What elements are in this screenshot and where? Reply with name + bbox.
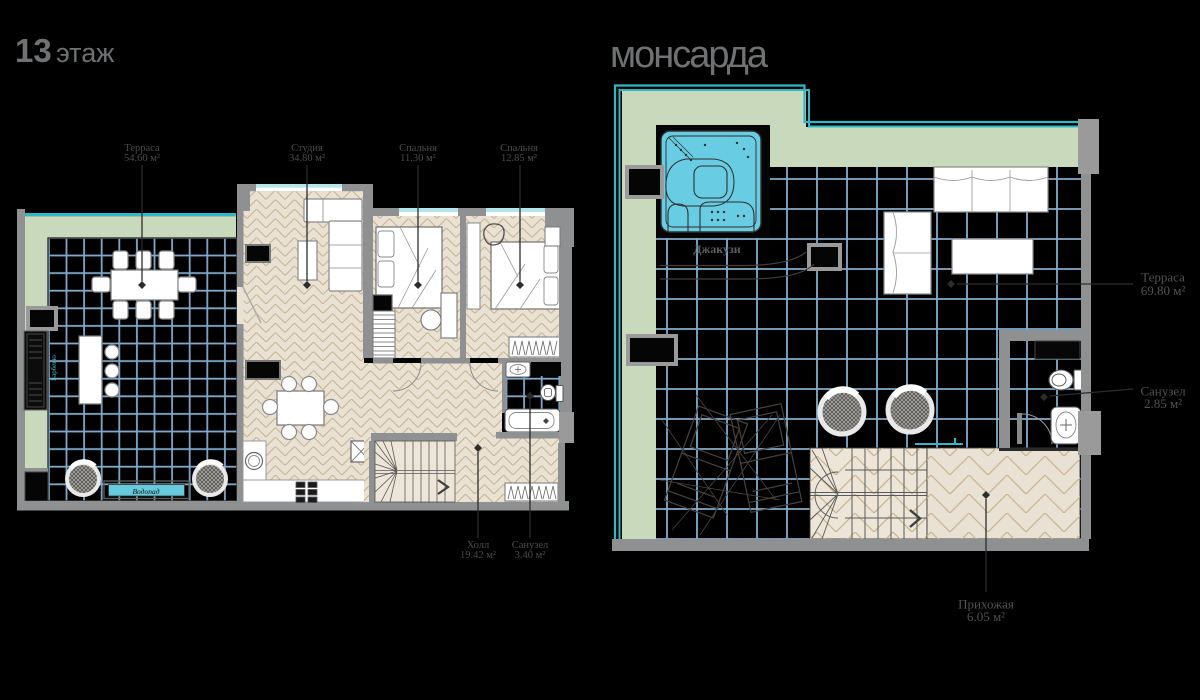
svg-text:19.42 м²: 19.42 м² — [460, 550, 496, 561]
svg-text:Водопад: Водопад — [132, 487, 159, 496]
svg-text:11.30 м²: 11.30 м² — [400, 153, 436, 164]
svg-text:Джакузи: Джакузи — [693, 242, 741, 256]
svg-text:34.80 м²: 34.80 м² — [289, 153, 325, 164]
svg-text:54.60 м²: 54.60 м² — [124, 153, 160, 164]
svg-text:69.80 м²: 69.80 м² — [1141, 283, 1186, 298]
svg-text:3.40 м²: 3.40 м² — [515, 550, 546, 561]
svg-text:12.85 м²: 12.85 м² — [501, 153, 537, 164]
svg-text:13: 13 — [15, 32, 52, 69]
svg-text:2.85 м²: 2.85 м² — [1144, 396, 1182, 411]
svg-text:этаж: этаж — [56, 38, 114, 68]
svg-text:6.05 м²: 6.05 м² — [967, 609, 1005, 624]
svg-text:монсарда: монсарда — [610, 34, 769, 76]
svg-text:Барбекю: Барбекю — [50, 355, 58, 381]
